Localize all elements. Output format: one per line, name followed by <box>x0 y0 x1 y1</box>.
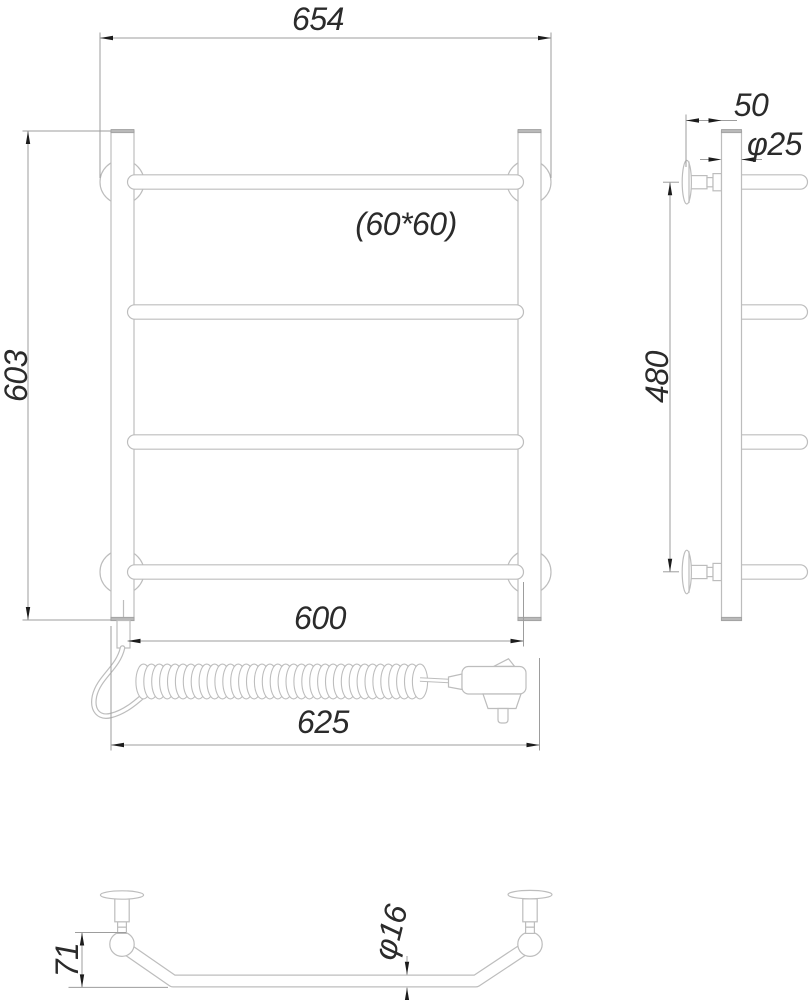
arrowhead <box>511 639 524 643</box>
plug-switch-lever <box>494 659 515 667</box>
dim-post-diameter: φ25 <box>700 126 803 162</box>
plug-base <box>483 694 521 709</box>
dim-label-overall-width: 654 <box>292 1 344 37</box>
post-end-cap <box>111 130 134 133</box>
towel-bar <box>128 435 524 449</box>
wall-plate <box>682 550 691 594</box>
dim-label-bar-section: (60*60) <box>355 206 456 242</box>
towel-bar <box>128 175 524 189</box>
bracket-neck <box>118 922 127 927</box>
towel-bar-side <box>735 435 808 449</box>
arrowhead <box>26 607 30 620</box>
dim-label-mounting-width: 625 <box>297 704 350 740</box>
bracket-ball-joint <box>110 932 134 956</box>
towel-bar-side <box>735 565 808 579</box>
vertical-post-right <box>518 131 541 621</box>
dim-label-tube-diameter: φ16 <box>366 901 414 964</box>
post-end-cap <box>518 617 541 620</box>
vertical-post-side <box>722 131 742 621</box>
wall-plate <box>682 160 691 204</box>
towel-bar <box>128 305 524 319</box>
arrowhead <box>538 36 551 40</box>
power-cord-coil <box>136 664 428 699</box>
drawing-sheet: 654 (60*60) 603 600 625 <box>0 0 812 1000</box>
cable-gland <box>117 621 130 649</box>
dim-overall-width: 654 <box>100 1 551 178</box>
dim-bar-length: 600 <box>128 582 524 647</box>
arrowhead <box>527 743 540 747</box>
arrowhead <box>668 559 672 572</box>
dim-label-bar-length: 600 <box>294 600 347 636</box>
arrowhead <box>668 182 672 195</box>
arrowhead <box>709 157 722 161</box>
bracket-coupler <box>707 567 713 576</box>
dim-label-post-diameter: φ25 <box>747 126 803 162</box>
tube-core <box>126 949 525 982</box>
dim-overall-height: 603 <box>0 131 111 620</box>
arrowhead <box>26 131 30 144</box>
arrowhead <box>405 962 409 975</box>
plug-body <box>462 667 526 695</box>
post-end-cap <box>722 130 742 133</box>
dim-bar-section: (60*60) <box>355 206 456 242</box>
dim-label-bracket-span: 480 <box>639 350 675 403</box>
towel-bar-side <box>735 305 808 319</box>
bracket-ball-joint <box>518 932 542 956</box>
dim-label-bracket-height: 71 <box>49 943 85 978</box>
power-plug <box>449 659 527 723</box>
arrowhead <box>100 36 113 40</box>
dim-bracket-span: 480 <box>639 182 679 572</box>
towel-bar <box>128 565 524 579</box>
arrowhead <box>405 988 409 1000</box>
bracket-block <box>713 563 722 580</box>
arrowhead <box>686 118 699 122</box>
bracket-block <box>713 174 722 191</box>
towel-bar-side <box>735 175 808 189</box>
dim-label-overall-height: 603 <box>0 349 34 402</box>
bracket-stem <box>523 899 537 922</box>
bracket-neck <box>526 922 535 927</box>
bracket-neck <box>526 927 535 933</box>
wall-plate <box>100 891 143 899</box>
towel-rail-technical-drawing: 654 (60*60) 603 600 625 <box>0 0 812 1000</box>
plug-prong <box>498 709 508 724</box>
wall-plate <box>508 890 552 898</box>
side-view <box>682 130 807 621</box>
bottom-view <box>100 890 552 981</box>
bracket-stem <box>115 899 129 922</box>
plug-cord-connector <box>449 674 463 690</box>
arrowhead <box>111 743 124 747</box>
bracket-coupler <box>707 178 713 187</box>
power-cord-tail-core <box>420 680 449 682</box>
arrowhead <box>709 118 722 122</box>
dim-label-bracket-depth: 50 <box>734 87 769 123</box>
vertical-post-left <box>111 131 134 621</box>
post-end-cap <box>722 617 742 620</box>
post-end-cap <box>518 130 541 133</box>
